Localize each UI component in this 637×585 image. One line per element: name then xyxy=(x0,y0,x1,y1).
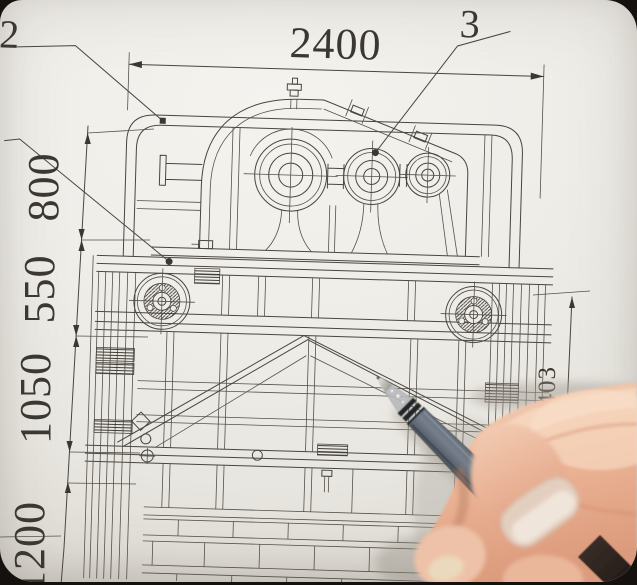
dim-left-800: 800 xyxy=(19,153,68,222)
dimension-arrow-left-icon xyxy=(129,61,142,68)
callout-3: 3 xyxy=(372,0,511,160)
breather-cap xyxy=(287,78,302,109)
flange-right xyxy=(440,281,508,349)
bolt xyxy=(409,125,433,149)
blueprint-svg: 2400 2 3 800 550 1 xyxy=(0,0,637,582)
dim-left-550: 550 xyxy=(15,255,64,324)
bolt xyxy=(345,99,369,123)
callout-2: 2 xyxy=(0,11,169,123)
flange-left xyxy=(128,267,196,335)
dimension-2400: 2400 xyxy=(125,13,545,198)
pen-sparkle xyxy=(397,395,400,398)
dim-left-1050: 1050 xyxy=(11,352,60,444)
dim-top-label: 2400 xyxy=(289,18,382,70)
gearbox xyxy=(151,74,484,265)
callout-3-label: 3 xyxy=(459,1,481,47)
dim-left-1200: 1200 xyxy=(5,501,54,582)
callout-2-label: 2 xyxy=(0,11,21,57)
photo-of-blueprint: 2400 2 3 800 550 1 xyxy=(0,0,637,582)
shaft-large xyxy=(242,126,339,225)
pen-sparkle xyxy=(391,390,393,392)
pen-sparkle xyxy=(402,401,404,403)
dimension-arrow-right-icon xyxy=(531,73,544,80)
shaft-middle xyxy=(335,139,409,213)
